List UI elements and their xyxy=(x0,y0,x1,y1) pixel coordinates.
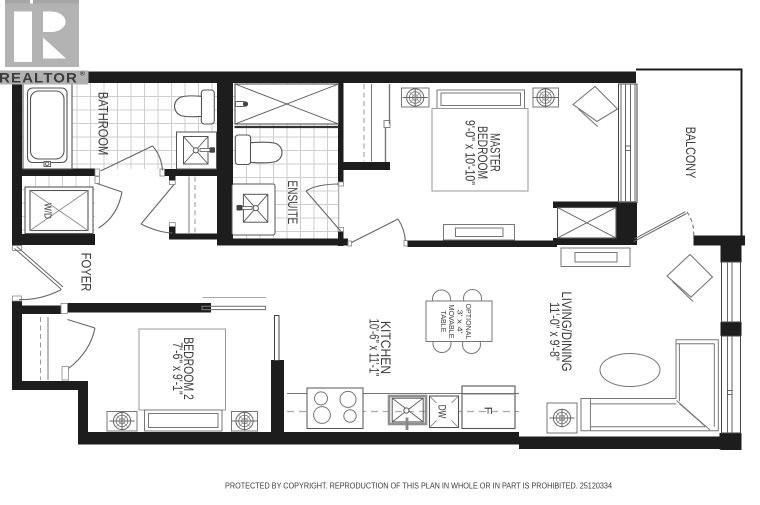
svg-text:BALCONY: BALCONY xyxy=(683,127,699,179)
svg-text:PROTECTED BY COPYRIGHT. REPROD: PROTECTED BY COPYRIGHT. REPRODUCTION OF … xyxy=(225,482,612,491)
svg-text:LIVING/DINING11'-0" x 9'-8": LIVING/DINING11'-0" x 9'-8" xyxy=(547,292,575,372)
svg-text:BEDROOM 27'-6" x 9'-1": BEDROOM 27'-6" x 9'-1" xyxy=(170,337,197,400)
svg-text:F: F xyxy=(482,407,494,415)
svg-text:FOYER: FOYER xyxy=(79,253,95,292)
svg-text:KITCHEN10'-6" x 11'-1": KITCHEN10'-6" x 11'-1" xyxy=(367,319,395,377)
svg-text:W/D: W/D xyxy=(42,203,54,219)
svg-text:®: ® xyxy=(80,70,85,78)
svg-text:DW: DW xyxy=(436,405,448,419)
svg-text:REALTOR: REALTOR xyxy=(0,70,78,86)
svg-text:BATHROOM: BATHROOM xyxy=(96,92,112,155)
svg-text:ENSUITE: ENSUITE xyxy=(285,180,301,224)
